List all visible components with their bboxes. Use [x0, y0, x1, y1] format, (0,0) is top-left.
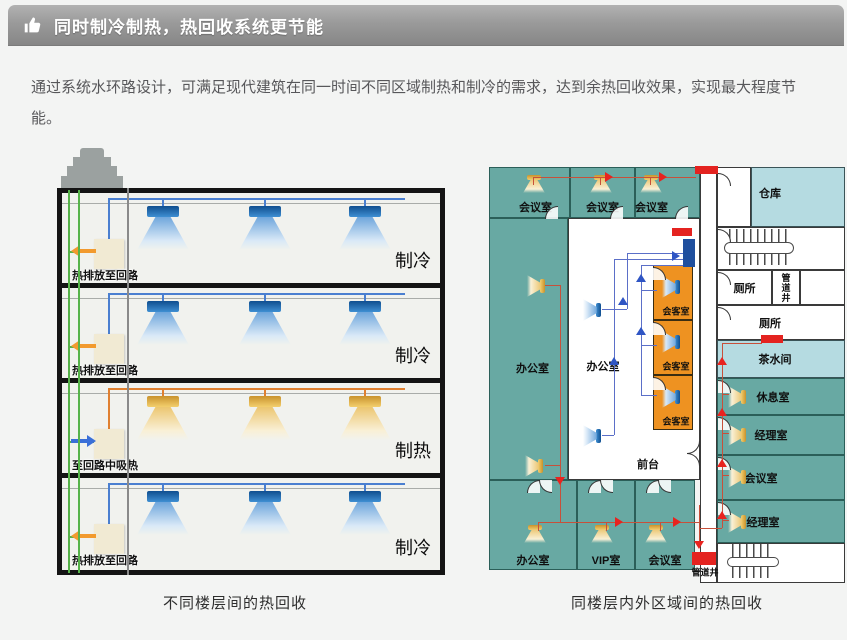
diffuser-cap: [147, 396, 179, 407]
pipe-run: [108, 198, 405, 200]
diffuser-flare: [137, 217, 189, 250]
room-经理室: 经理室: [717, 500, 845, 543]
building-floor-1: 热排放至回路制冷: [62, 193, 440, 288]
pipe-drop: [108, 388, 110, 431]
room-休息室: 休息室: [717, 378, 845, 415]
building-outline: 热排放至回路制冷热排放至回路制冷至回路中吸热制热热排放至回路制冷: [57, 188, 445, 575]
air-diffuser: [339, 206, 391, 250]
plan-label: 前台: [637, 456, 659, 472]
room-label: 仓库: [759, 185, 781, 201]
diffuser-cap: [538, 459, 543, 473]
flow-direction-arrow: [717, 459, 727, 467]
flow-direction-arrow: [615, 517, 623, 527]
diffuser-cap: [596, 303, 601, 317]
flow-direction-arrow: [717, 357, 727, 365]
room-label: 经理室: [755, 427, 788, 443]
heat-flow-arrow: [71, 435, 97, 447]
diffuser-flare: [525, 455, 539, 477]
diffuser-cap: [147, 206, 179, 217]
diffuser-cap: [596, 429, 601, 443]
diffuser-flare: [339, 407, 391, 440]
loop-line: [641, 265, 683, 266]
diffuser-cap: [528, 525, 542, 530]
stairs-icon: [729, 229, 789, 265]
plan-label: 管道井: [691, 566, 718, 579]
ceiling-line: [62, 488, 440, 489]
diffuser-flare: [645, 529, 667, 543]
ceiling-line: [62, 393, 440, 394]
room-label: 会议室: [745, 470, 778, 486]
air-diffuser: [239, 396, 291, 440]
air-diffuser: [525, 455, 543, 477]
diffuser-cap: [741, 390, 746, 404]
room-label: 经理室: [747, 514, 780, 530]
diffuser-cap: [249, 206, 281, 217]
building-floor-3: 至回路中吸热制热: [62, 383, 440, 478]
green-loop-pipe: [78, 190, 80, 573]
room-会议室: 会议室: [717, 455, 845, 500]
ceiling-line: [62, 298, 440, 299]
room-label: 会客室: [662, 414, 689, 427]
room-茶水间: 茶水间: [717, 340, 845, 378]
air-diffuser: [527, 275, 545, 297]
loop-line: [533, 177, 534, 185]
diffuser-cap: [741, 470, 746, 484]
air-diffuser: [583, 425, 601, 447]
flow-direction-arrow: [609, 357, 619, 365]
diffuser-flare: [339, 312, 391, 345]
arrow-head: [87, 435, 96, 447]
loop-line: [545, 465, 560, 466]
room-label: 茶水间: [759, 351, 792, 367]
pipe-drop: [108, 483, 110, 526]
building-floor-4: 热排放至回路制冷: [62, 478, 440, 570]
heat-flow-arrow: [71, 530, 97, 542]
loop-line: [602, 435, 614, 436]
ceiling-line: [62, 203, 440, 204]
diffuser-flare: [339, 502, 391, 535]
mode-label: 制冷: [395, 342, 431, 368]
air-diffuser: [339, 301, 391, 345]
mode-label: 制冷: [395, 247, 431, 273]
red-damper-block: [695, 166, 718, 174]
pipe-run: [108, 293, 405, 295]
arrow-shaft: [80, 249, 96, 253]
room-label: 办公室: [516, 360, 549, 376]
loop-line: [545, 285, 560, 286]
pipe-run: [108, 388, 405, 390]
arrow-shaft: [80, 344, 96, 348]
heat-flow-arrow: [71, 245, 97, 257]
diffuser-cap: [741, 428, 746, 442]
diffuser-flare: [239, 502, 291, 535]
red-damper-block: [672, 228, 692, 236]
diffuser-cap: [675, 390, 680, 404]
diffuser-cap: [249, 396, 281, 407]
room-会议室: 会议室: [635, 167, 700, 218]
room-label: 会议室: [649, 552, 682, 568]
flow-direction-arrow: [673, 517, 681, 527]
room-办公室: 办公室: [489, 480, 577, 570]
loop-line: [660, 522, 661, 531]
loop-line: [641, 290, 657, 291]
mode-label: 制热: [395, 437, 431, 463]
diffuser-cap: [349, 206, 381, 217]
room-会议室: 会议室: [570, 167, 635, 218]
green-loop-pipe: [68, 190, 70, 573]
room-label: 办公室: [517, 552, 550, 568]
room-label: 会客室: [662, 359, 689, 372]
room-label: 厕所: [759, 315, 781, 331]
room-label: VIP室: [592, 552, 621, 568]
diffuser-cap: [349, 491, 381, 502]
air-diffuser: [524, 525, 546, 543]
thumbs-up-icon: [22, 14, 44, 36]
pipe-drop: [108, 198, 110, 241]
stairs-icon: [732, 544, 774, 578]
flow-direction-arrow: [659, 172, 667, 182]
diffuser-flare: [583, 425, 597, 447]
room-经理室: 经理室: [717, 415, 845, 455]
cooling-tower-icon: [48, 148, 110, 190]
room-label: 会议室: [635, 199, 668, 215]
loop-line: [641, 395, 657, 396]
caption-interfloor: 不同楼层间的热回收: [35, 592, 435, 613]
pipe-drop: [108, 293, 110, 336]
intro-paragraph: 通过系统水环路设计，可满足现代建筑在同一时间不同区域制热和制冷的需求，达到余热回…: [31, 72, 821, 134]
diffuser-flare: [239, 312, 291, 345]
flow-direction-arrow: [618, 297, 628, 305]
red-damper-block: [692, 552, 716, 565]
air-diffuser: [645, 525, 667, 543]
flow-direction-arrow: [717, 511, 727, 519]
loop-line: [722, 394, 729, 395]
figure-floorplan-heat-recovery: 会议室会议室会议室办公室办公室会客室会客室会客室办公室VIP室会议室仓库厕所管道…: [489, 165, 845, 585]
air-diffuser: [583, 299, 601, 321]
loop-line: [722, 520, 729, 521]
room-会议室: 会议室: [635, 480, 695, 570]
flow-direction-arrow: [717, 408, 727, 416]
air-diffuser: [339, 491, 391, 535]
gray-riser-pipe: [127, 188, 129, 575]
air-diffuser: [137, 491, 189, 535]
red-damper-block: [761, 335, 783, 343]
diffuser-cap: [249, 491, 281, 502]
room-label: 休息室: [757, 389, 790, 405]
diffuser-flare: [583, 299, 597, 321]
diffuser-flare: [523, 179, 545, 193]
room-label: 厕所: [734, 280, 756, 296]
plan-area: [700, 167, 717, 583]
loop-line: [699, 528, 722, 529]
diffuser-flare: [239, 407, 291, 440]
flow-direction-arrow: [555, 477, 565, 485]
diffuser-flare: [527, 275, 541, 297]
diffuser-cap: [349, 301, 381, 312]
pipe-run: [108, 483, 405, 485]
diffuser-flare: [137, 407, 189, 440]
loop-line: [641, 345, 657, 346]
room-label: 会客室: [662, 304, 689, 317]
diffuser-flare: [591, 529, 613, 543]
diffuser-flare: [137, 502, 189, 535]
loop-line: [606, 522, 607, 531]
air-diffuser: [137, 301, 189, 345]
arrow-shaft: [80, 534, 96, 538]
room-办公室: 办公室: [489, 218, 568, 480]
diffuser-flare: [239, 217, 291, 250]
diffuser-cap: [741, 515, 746, 529]
air-diffuser: [239, 491, 291, 535]
page-root: 同时制冷制热，热回收系统更节能 通过系统水环路设计，可满足现代建筑在同一时间不同…: [0, 0, 847, 640]
diffuser-cap: [349, 396, 381, 407]
air-diffuser: [137, 396, 189, 440]
flow-direction-arrow: [636, 274, 646, 282]
building-floor-2: 热排放至回路制冷: [62, 288, 440, 383]
section-header-bar: 同时制冷制热，热回收系统更节能: [8, 5, 844, 46]
flow-direction-arrow: [694, 541, 704, 549]
diffuser-flare: [137, 312, 189, 345]
loop-line: [560, 285, 561, 522]
air-diffuser: [239, 206, 291, 250]
loop-line: [722, 343, 723, 528]
flow-direction-arrow: [636, 327, 646, 335]
diffuser-cap: [249, 301, 281, 312]
section-title: 同时制冷制热，热回收系统更节能: [54, 13, 324, 38]
diffuser-flare: [524, 529, 546, 543]
heat-exchanger-box: [94, 334, 124, 364]
blue-damper-block: [683, 239, 695, 267]
loop-line: [722, 343, 762, 344]
loop-line: [650, 177, 651, 185]
loop-line: [600, 177, 601, 185]
room-label: 管道井: [780, 273, 793, 303]
heat-flow-arrow: [71, 340, 97, 352]
room-管道井: 管道井: [772, 270, 800, 305]
loop-line: [722, 475, 729, 476]
heat-exchanger-box: [94, 429, 124, 459]
loop-line: [614, 259, 615, 435]
caption-floorplan: 同楼层内外区域间的热回收: [489, 592, 845, 613]
diffuser-flare: [339, 217, 391, 250]
diffuser-cap: [147, 301, 179, 312]
loop-line: [538, 522, 539, 531]
flow-direction-arrow: [605, 172, 613, 182]
diffuser-cap: [147, 491, 179, 502]
diffuser-cap: [675, 335, 680, 349]
flow-direction-arrow: [672, 251, 680, 261]
loop-line: [533, 177, 696, 178]
heat-exchanger-box: [94, 239, 124, 269]
plan-area: [800, 270, 845, 305]
air-diffuser: [339, 396, 391, 440]
air-diffuser: [591, 525, 613, 543]
figure-interfloor-heat-recovery: 热排放至回路制冷热排放至回路制冷至回路中吸热制热热排放至回路制冷: [35, 148, 465, 588]
mode-label: 制冷: [395, 534, 431, 560]
air-diffuser: [239, 301, 291, 345]
room-仓库: 仓库: [751, 167, 845, 227]
heat-exchanger-box: [94, 524, 124, 554]
diffuser-cap: [675, 280, 680, 294]
loop-line: [722, 433, 729, 434]
air-diffuser: [137, 206, 189, 250]
